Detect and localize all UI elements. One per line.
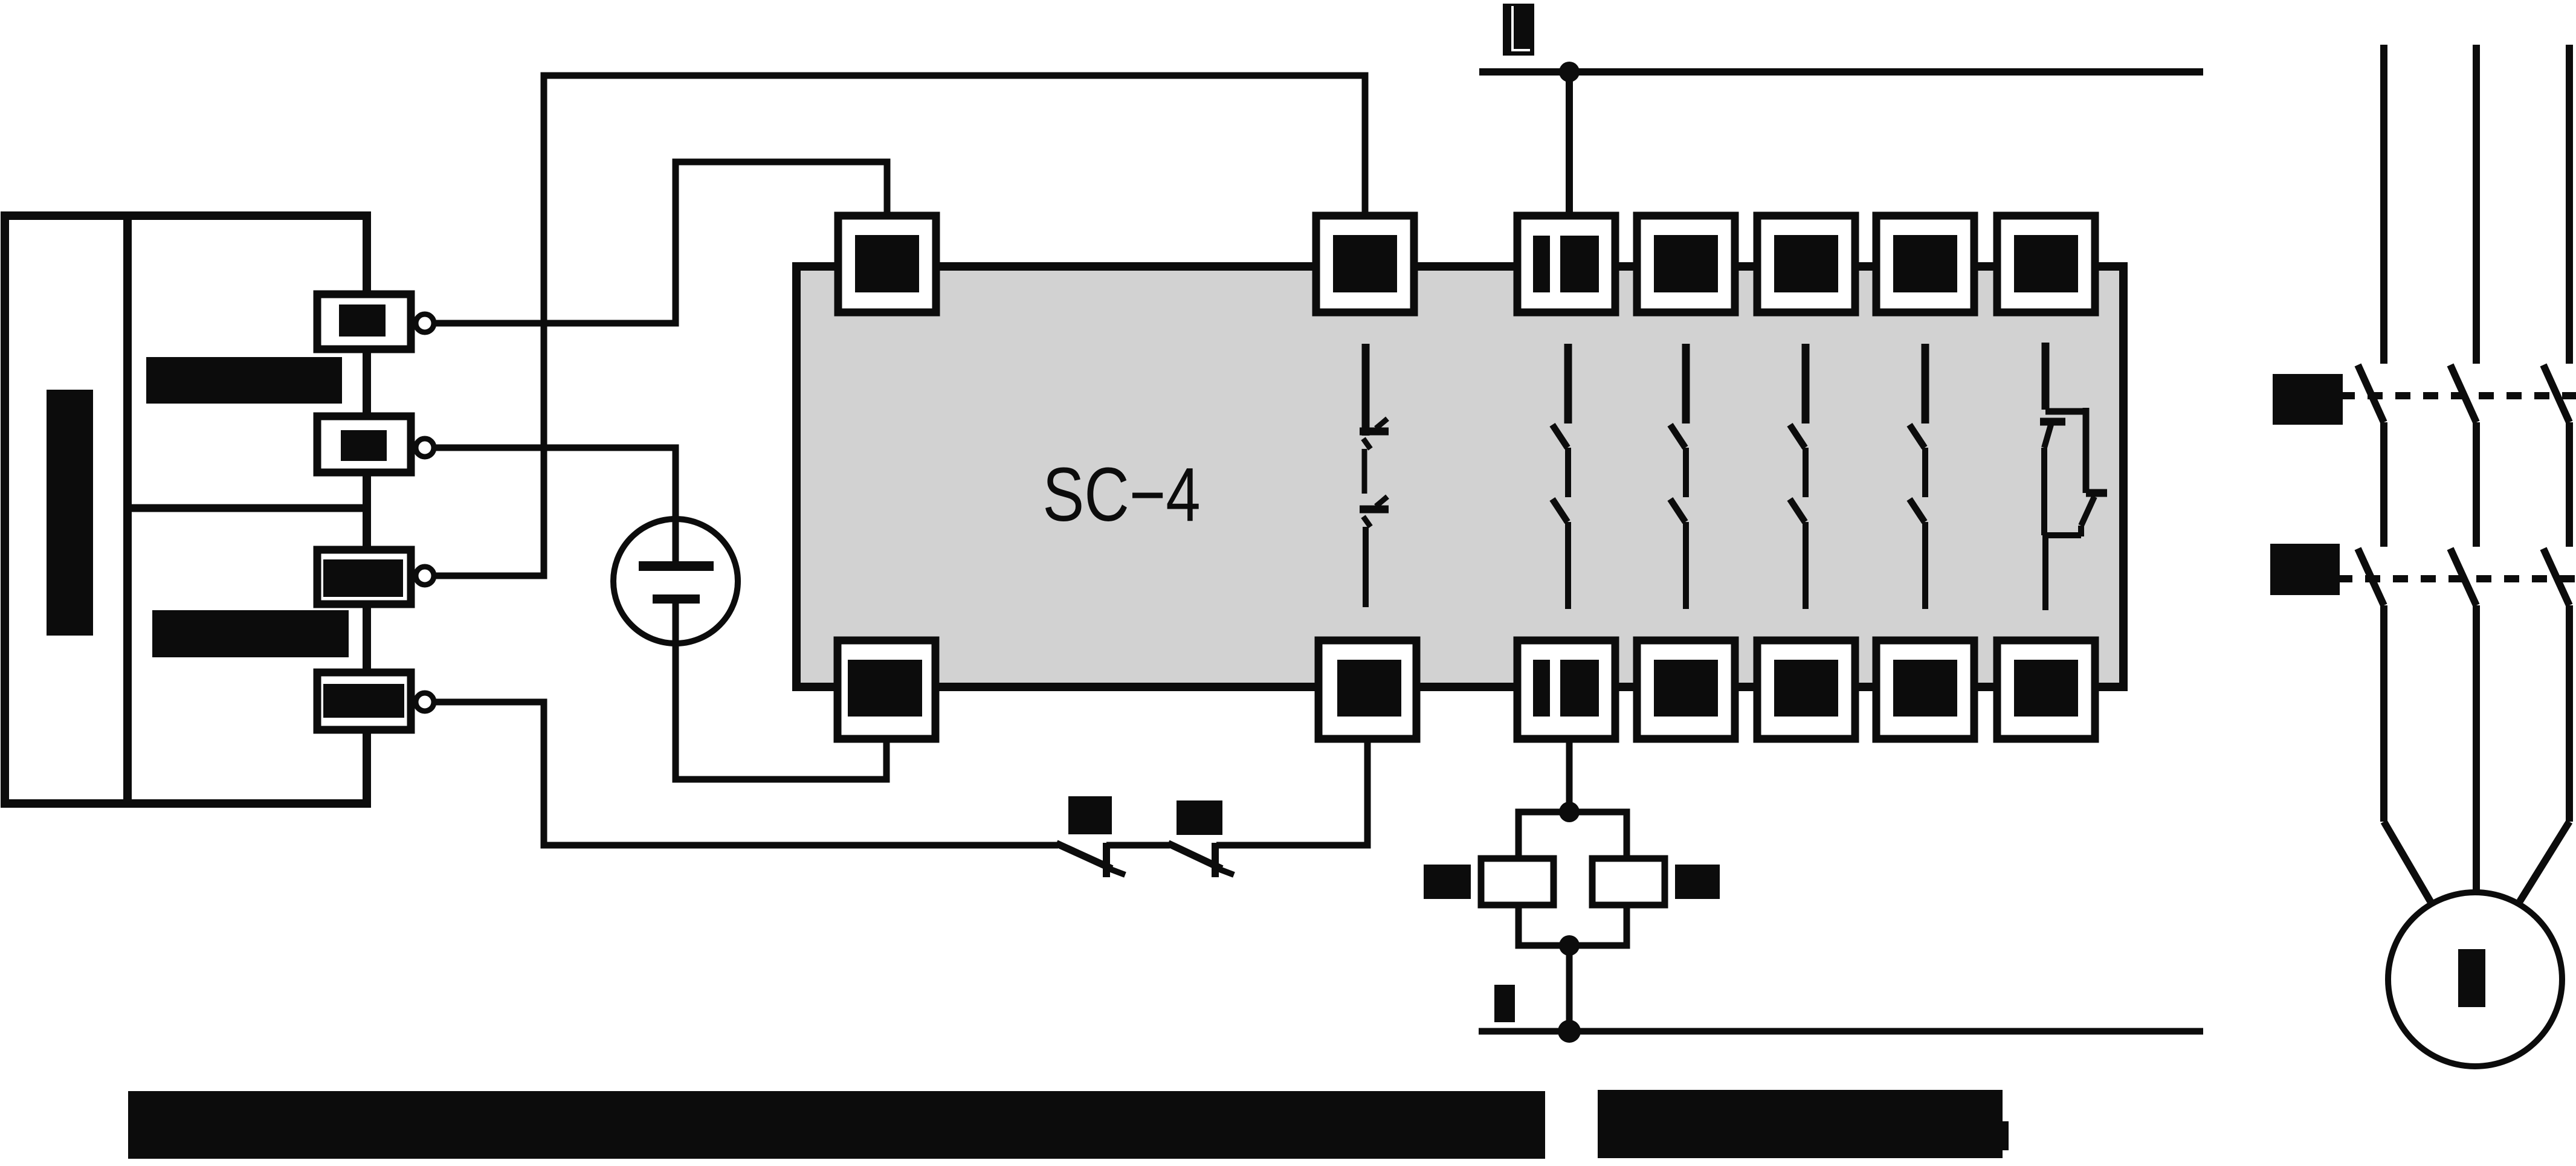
svg-text:SC−4: SC−4 xyxy=(1042,453,1200,537)
